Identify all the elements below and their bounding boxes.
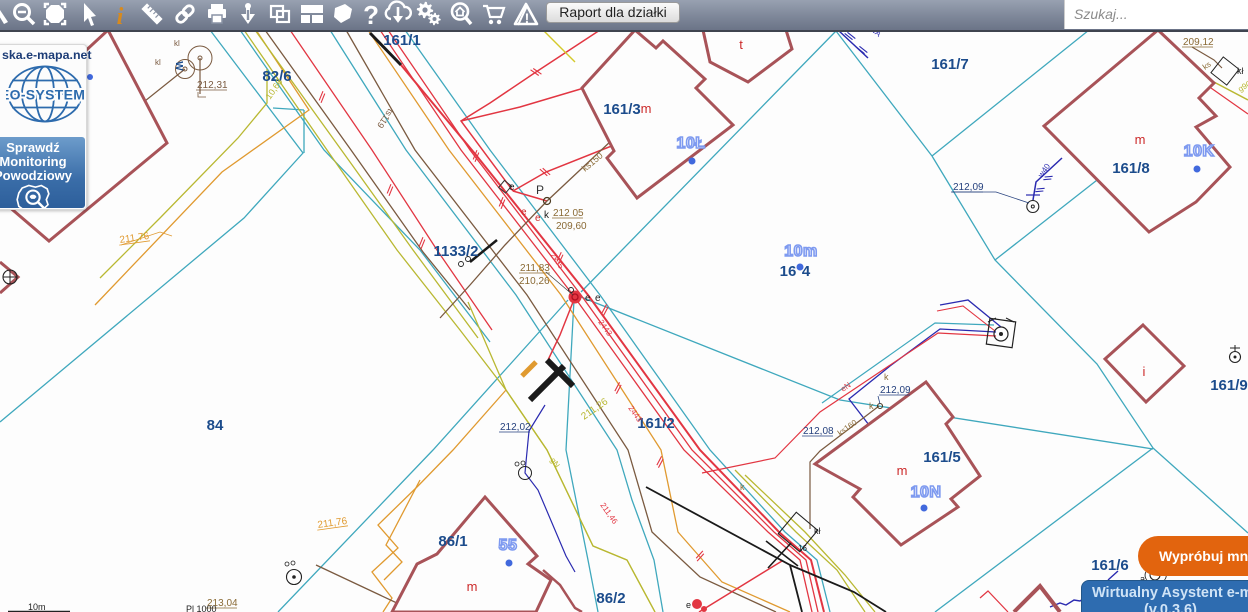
svg-text:e: e [521,207,527,218]
svg-text:k: k [884,372,889,382]
svg-text:211,83: 211,83 [520,263,550,274]
svg-text:ks: ks [1201,60,1213,72]
svg-text:161/5: 161/5 [923,449,961,466]
svg-text:GEO-SYSTEM: GEO-SYSTEM [6,87,84,103]
svg-text:!: ! [525,10,530,26]
svg-text:2x35: 2x35 [548,251,566,271]
svg-text:P: P [536,183,544,197]
svg-text:g90: g90 [1237,79,1248,94]
svg-text:2443: 2443 [596,318,614,338]
svg-text:e: e [595,293,601,304]
svg-text:161/9: 161/9 [1210,377,1248,394]
svg-text:86/1: 86/1 [438,533,467,550]
svg-text:211,76: 211,76 [317,516,349,531]
svg-text:212,09: 212,09 [880,385,911,396]
svg-text:161/7: 161/7 [931,56,969,73]
svg-text:10K: 10K [1184,143,1215,160]
svg-text:kl: kl [174,39,180,48]
svg-text:t: t [739,37,743,52]
svg-text:i: i [117,4,124,30]
svg-text:86/2: 86/2 [596,590,625,607]
svg-text:212 05: 212 05 [553,208,584,219]
svg-text:e: e [509,182,515,193]
svg-text:10Ł: 10Ł [676,135,705,152]
svg-text:16: 16 [780,263,797,280]
svg-text:i: i [1143,364,1146,379]
svg-text:?: ? [363,0,379,30]
svg-text:e: e [585,293,591,304]
svg-text:10m: 10m [784,243,818,260]
svg-text:e: e [686,600,691,610]
svg-text:161/8: 161/8 [1112,160,1150,177]
svg-text:211,76: 211,76 [119,231,151,246]
svg-text:m: m [641,101,652,116]
svg-text:kl: kl [155,58,161,67]
svg-text:Pl 1000: Pl 1000 [186,604,217,612]
svg-text:161/1: 161/1 [383,32,421,49]
svg-text:10N: 10N [911,484,942,501]
svg-text:161/3: 161/3 [603,101,641,118]
svg-text:212,09: 212,09 [953,182,984,193]
svg-text:212,08: 212,08 [803,426,834,437]
svg-text:e: e [535,213,541,224]
svg-text:212,31: 212,31 [197,80,228,91]
svg-text:kł: kł [814,526,821,536]
svg-text:k: k [544,210,550,221]
svg-text:W: W [173,61,184,71]
svg-text:209,12: 209,12 [1183,37,1214,48]
svg-text:m: m [1135,132,1146,147]
svg-text:w40: w40 [1036,162,1053,180]
svg-text:kł: kł [1237,66,1244,76]
svg-text:55: 55 [499,537,518,554]
svg-text:1133/2: 1133/2 [433,243,478,260]
svg-text:211,46: 211,46 [598,501,619,526]
svg-text:209,60: 209,60 [556,221,587,232]
svg-text:161/6: 161/6 [1091,557,1129,574]
svg-text:ts119: ts119 [375,107,395,130]
svg-text:m: m [897,463,908,478]
svg-text:212,02: 212,02 [500,422,531,433]
svg-text:m: m [467,579,478,594]
svg-text:k: k [869,401,874,411]
svg-text:84: 84 [207,417,224,434]
svg-text:10m: 10m [28,602,46,612]
svg-text:210,26: 210,26 [519,276,550,287]
svg-text:k: k [740,482,745,492]
